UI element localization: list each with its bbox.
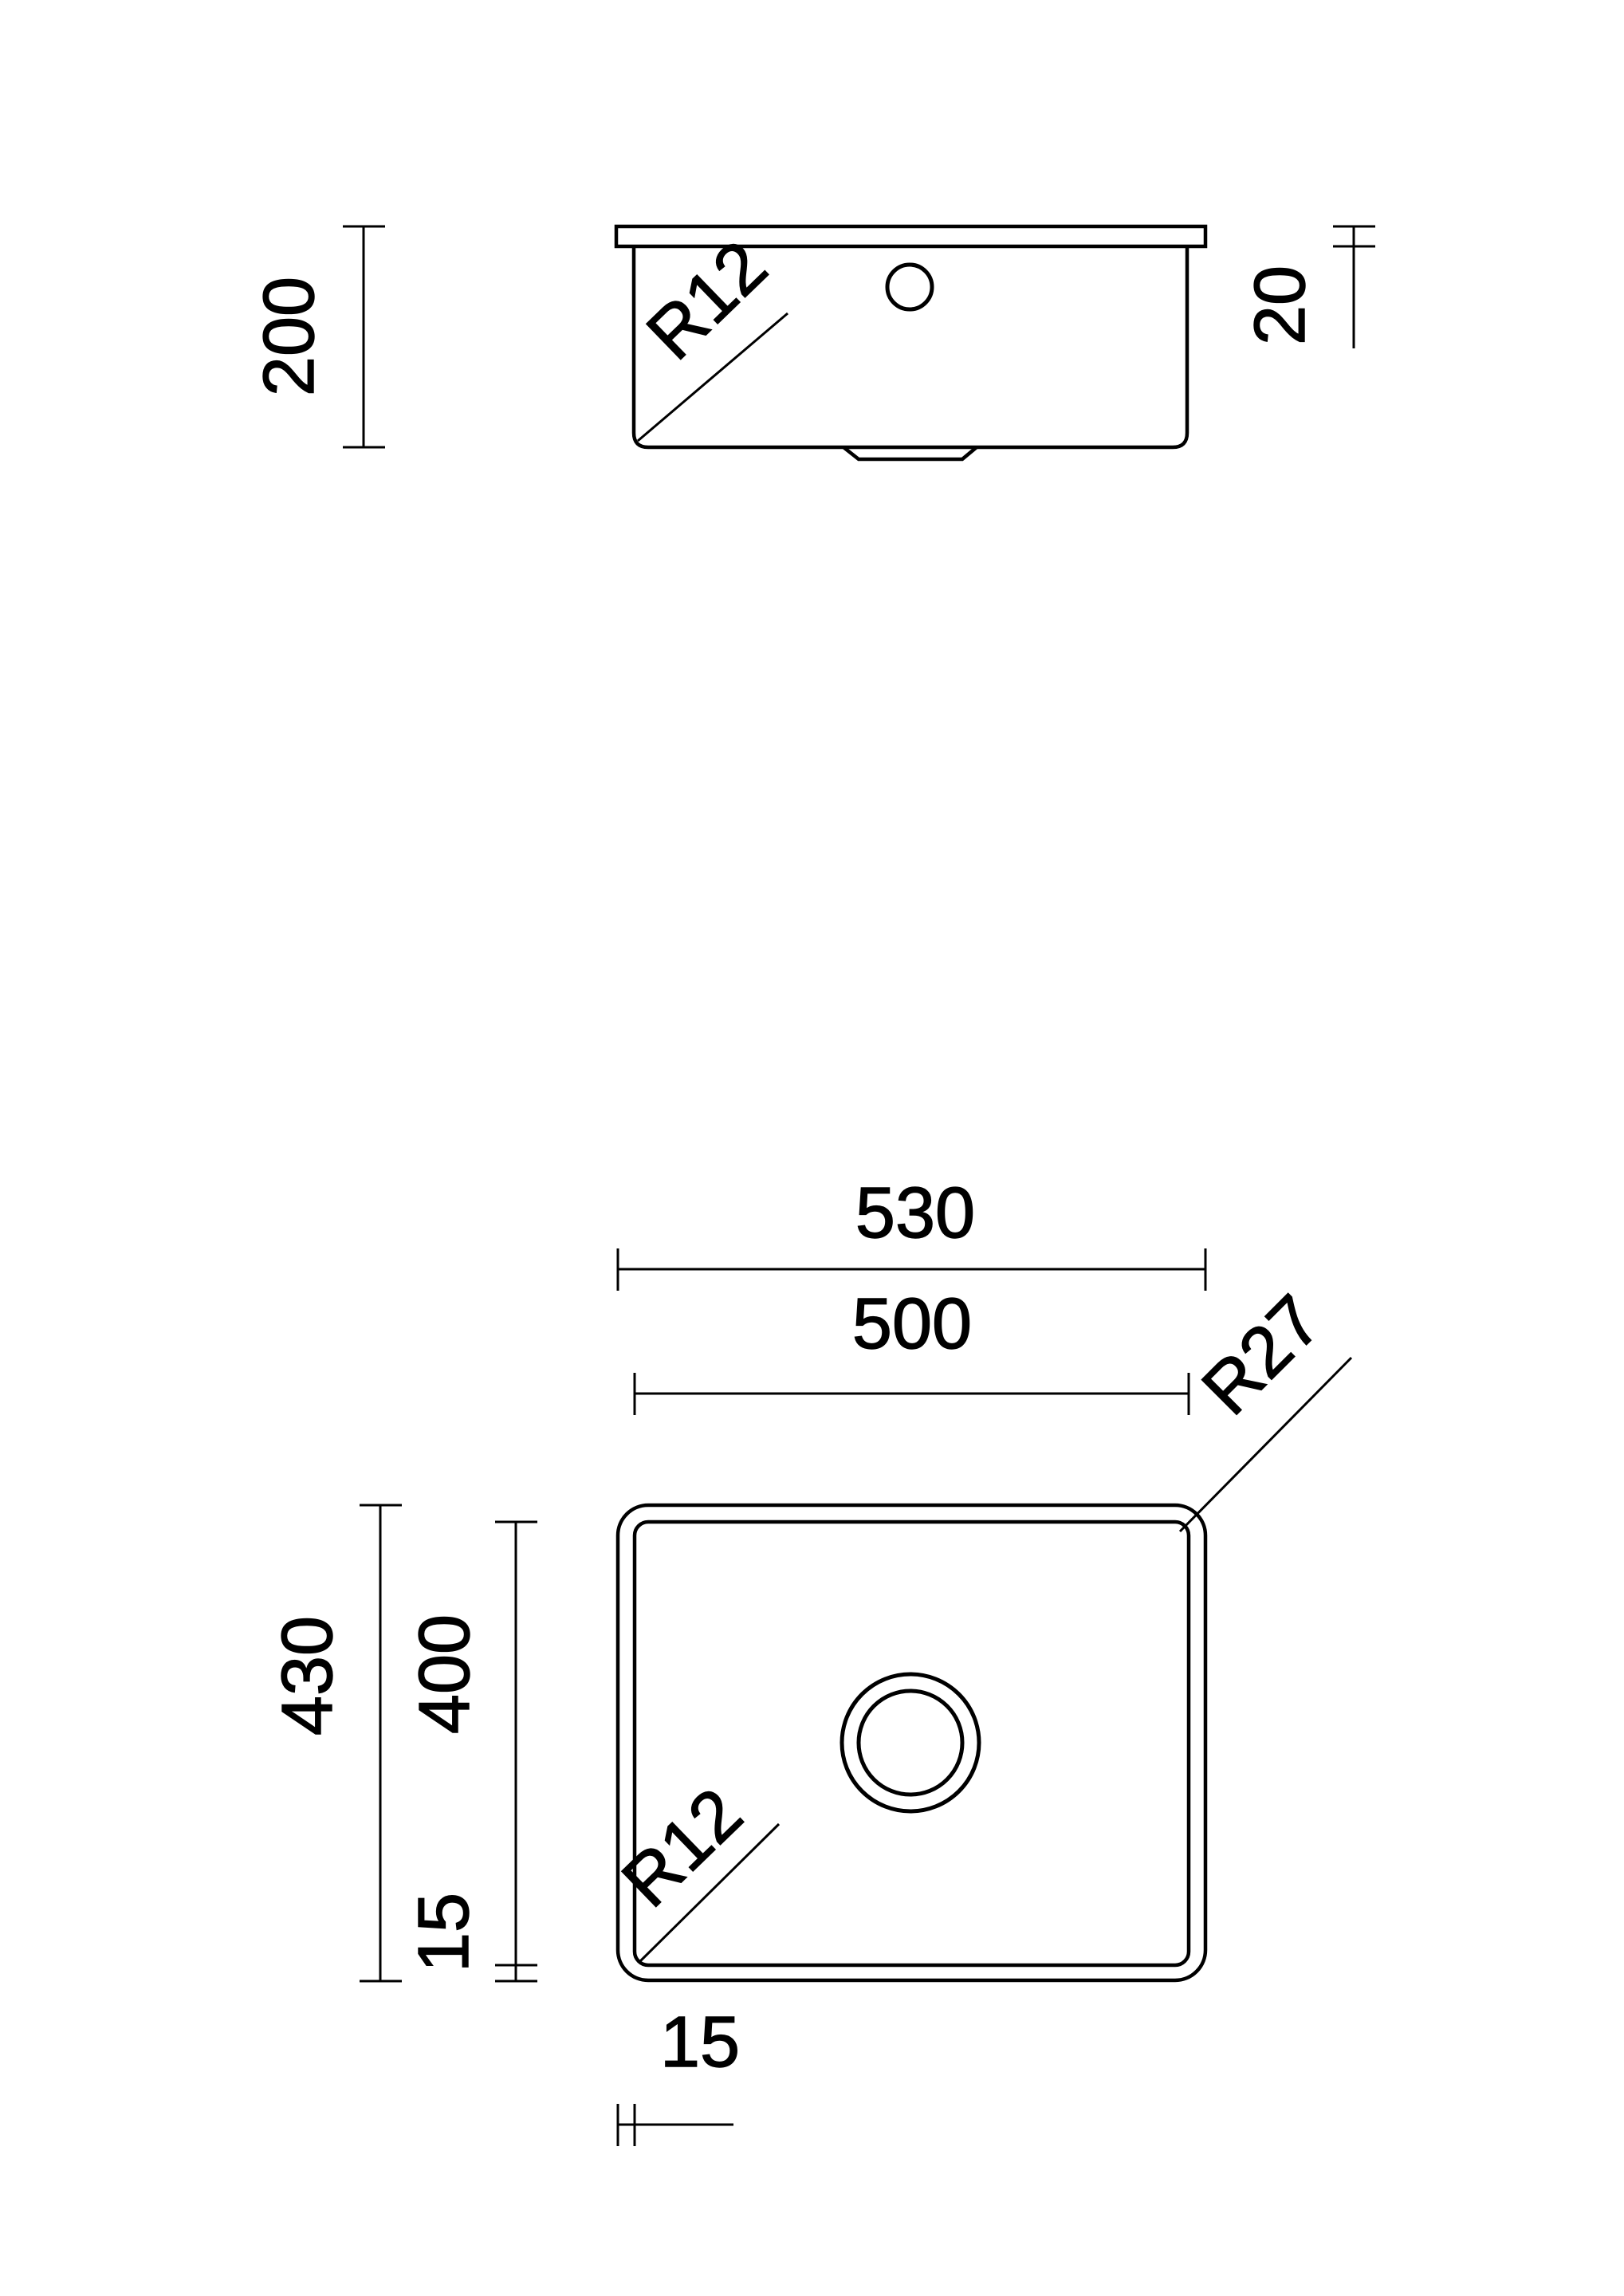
plan-view-outer-width-dimension: 530 (618, 1174, 1205, 1291)
side-view: R12 200 20 (250, 226, 1375, 459)
plan-view-outer-radius-label: R27 (1187, 1280, 1336, 1429)
plan-view-rim-offset-bottom-label: 15 (660, 2003, 740, 2082)
side-view-bottom-radius-label: R12 (632, 226, 782, 375)
plan-view: 530 500 R27 R12 430 (268, 1174, 1351, 2146)
plan-view-inner-depth-dimension: 400 15 (404, 1522, 537, 1981)
plan-view-inner-depth-label: 400 (405, 1614, 485, 1734)
plan-view-outer-outline (618, 1505, 1205, 1980)
plan-view-inner-radius-label: R12 (608, 1774, 757, 1923)
plan-view-inner-width-dimension: 500 (635, 1284, 1189, 1415)
side-view-flange-profile (616, 226, 1205, 246)
plan-view-outer-depth-label: 430 (268, 1616, 348, 1736)
plan-view-outer-width-label: 530 (855, 1174, 975, 1253)
plan-view-rim-offset-bottom-dimension: 15 (618, 2003, 740, 2146)
side-view-depth-label: 200 (250, 277, 329, 396)
side-view-rim-dimension: 20 (1241, 226, 1375, 348)
plan-view-drain-outer-ring (842, 1674, 979, 1811)
drawing-sheet: R12 200 20 (0, 0, 1624, 2296)
side-view-depth-dimension: 200 (250, 226, 385, 447)
side-view-drain-hole (887, 265, 932, 309)
plan-view-outer-depth-dimension: 430 (268, 1505, 402, 1981)
side-view-rim-label: 20 (1241, 265, 1320, 345)
plan-view-inner-outline (635, 1522, 1189, 1965)
plan-view-rim-offset-left-label: 15 (404, 1893, 484, 1972)
plan-view-inner-width-label: 500 (852, 1284, 972, 1364)
plan-view-drain-inner-ring (859, 1691, 962, 1795)
